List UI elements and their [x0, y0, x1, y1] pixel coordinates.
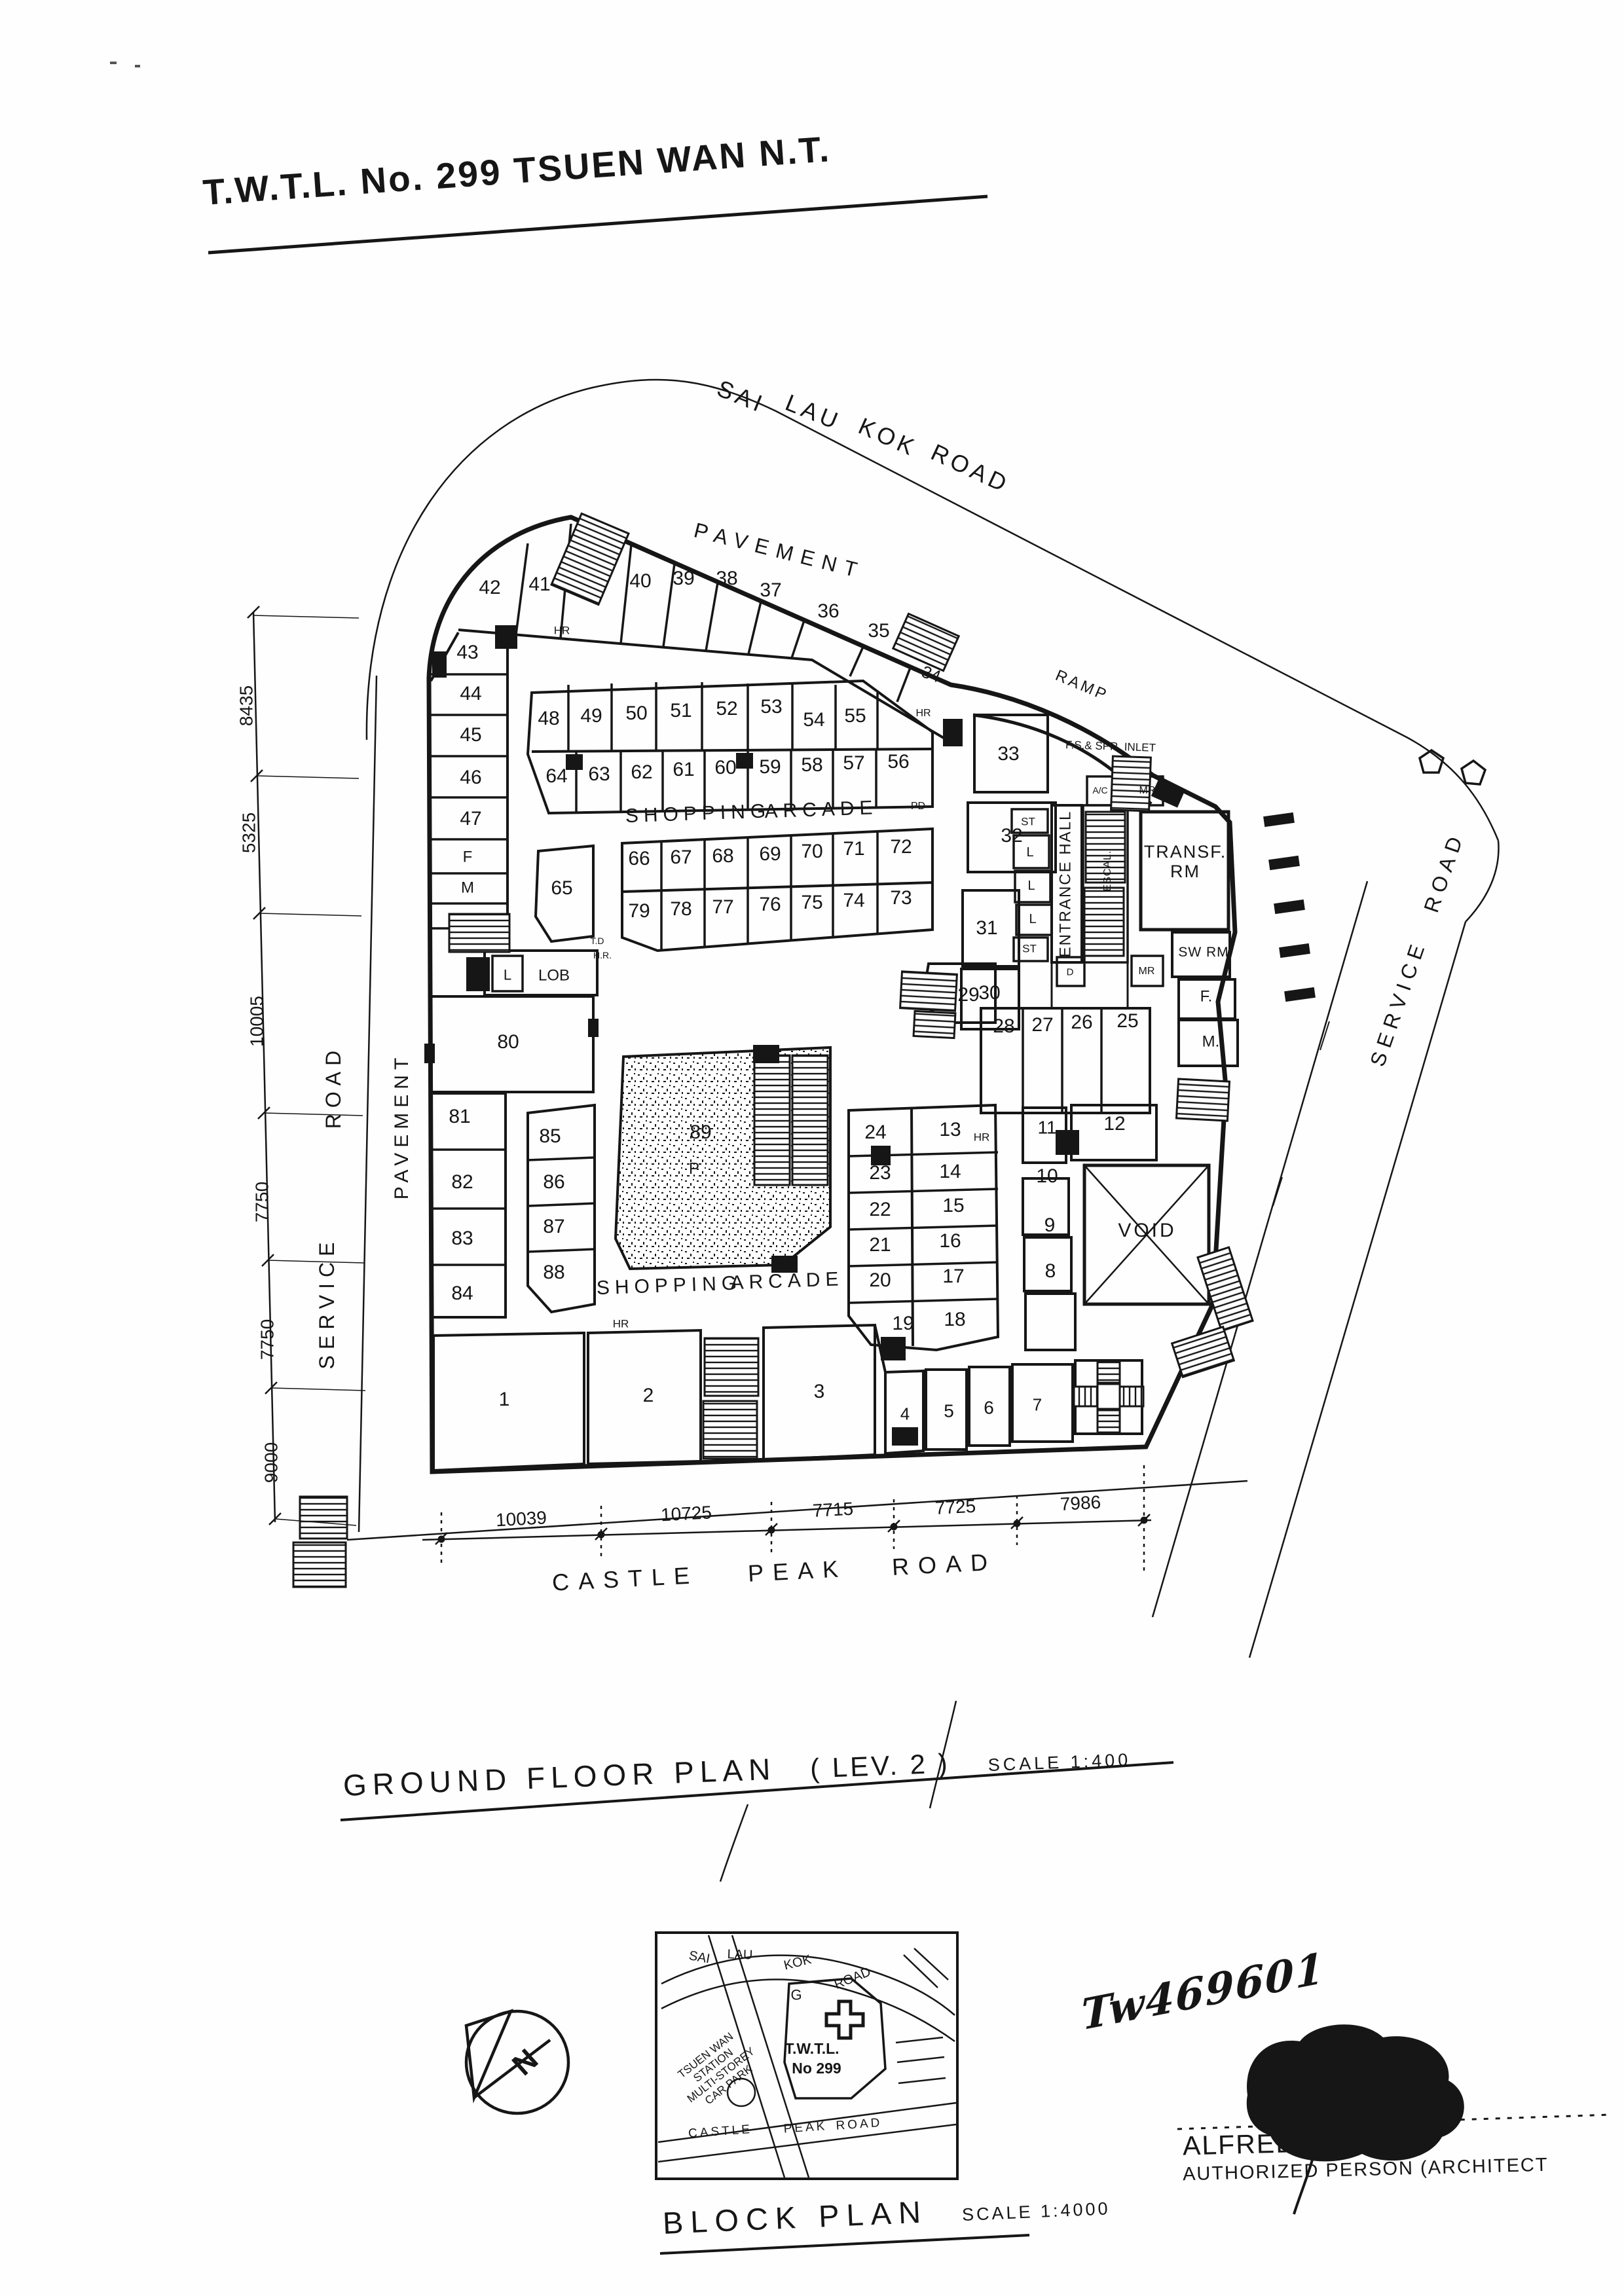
plan-drawing [0, 0, 1624, 2296]
architect-name: ALFREDS.TAM [1182, 2124, 1417, 2161]
block-plan-inset [656, 1933, 957, 2179]
block-plan-caption-scale: SCALE 1:4000 [961, 2198, 1111, 2225]
scan-noise [110, 62, 140, 67]
plan-caption-scale: SCALE 1:400 [987, 1750, 1132, 1775]
interior-walls [431, 524, 1238, 1470]
scanned-floor-plan-page: SAILAUKOKROADPAVEMENTPAVEMENTROADSERVICE… [0, 0, 1624, 2296]
north-arrow-icon [466, 2011, 568, 2113]
road-arrow-icons [1420, 750, 1485, 784]
plan-caption-level: ( LEV. 2 ) [809, 1747, 950, 1783]
